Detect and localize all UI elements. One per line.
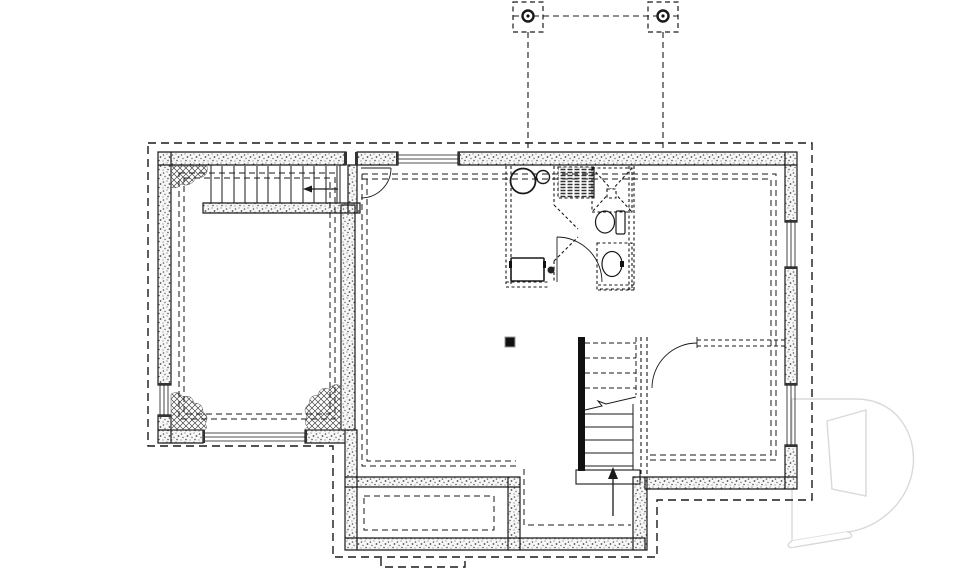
vent-grid-pad [558, 167, 594, 198]
washer-tab-left [509, 261, 512, 268]
floor-plan-drawing [0, 0, 960, 569]
central-stair-bearing-wall [578, 337, 585, 471]
steel-post [505, 337, 515, 347]
floor-plan-canvas [0, 0, 960, 569]
sink-faucet-icon [620, 261, 624, 267]
washer-tab-right [543, 261, 546, 268]
shower-drain [607, 189, 616, 198]
deck-post-anchor-left-bolt [526, 14, 529, 17]
floor-drain-icon [548, 267, 555, 274]
watermark-inner-shape [827, 410, 866, 496]
deck-post-anchor-right-bolt [661, 14, 664, 17]
